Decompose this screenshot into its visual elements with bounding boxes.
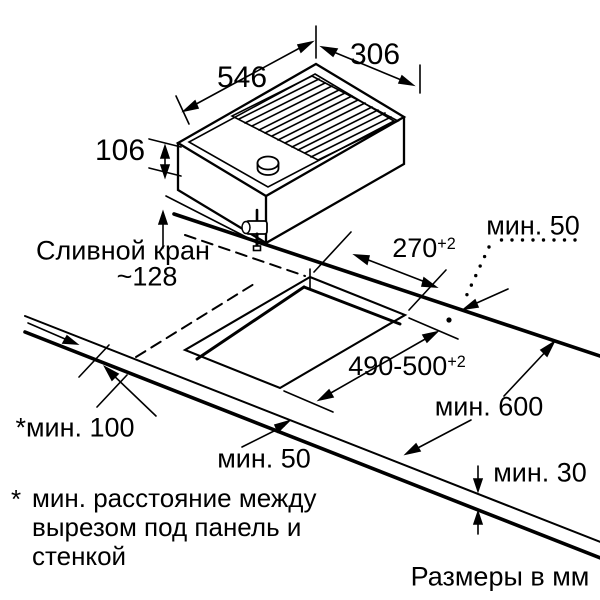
- min600-label: мин. 600: [435, 394, 544, 421]
- dim-490-value: 490-500: [348, 351, 447, 381]
- dim-270-tolerance: +2: [437, 235, 455, 253]
- min30-label: мин. 30: [493, 460, 587, 487]
- units-label: Размеры в мм: [411, 564, 590, 591]
- footnote-line-3: стенкой: [32, 542, 316, 571]
- min30-arrows: [474, 466, 482, 534]
- min100-dim: [28, 323, 156, 416]
- footnote-text: мин. расстояние между вырезом под панель…: [32, 484, 316, 571]
- installation-diagram-canvas: 546 306 106 Сливной кран ~128 мин. 50 27…: [0, 0, 600, 600]
- footnote-star: *: [11, 486, 21, 512]
- dim-306-label: 306: [350, 40, 400, 70]
- dim-128-label: ~128: [117, 264, 178, 291]
- drain-valve-label: Сливной кран: [36, 238, 210, 265]
- dim-106-line: [149, 139, 181, 177]
- dim-546-label: 546: [217, 63, 267, 93]
- appliance-drawing: [178, 64, 404, 251]
- footnote-line-2: вырезом под панель и: [32, 513, 316, 542]
- knob-glyph: [258, 157, 279, 176]
- min100-label: *мин. 100: [15, 415, 134, 442]
- dim-490-tolerance: +2: [447, 353, 465, 371]
- min50-bottom-label: мин. 50: [217, 446, 311, 473]
- dim-270-label: 270+2: [392, 234, 456, 262]
- dim-270-value: 270: [392, 233, 437, 263]
- dim-106-label: 106: [95, 136, 145, 166]
- footnote-line-1: мин. расстояние между: [32, 484, 316, 513]
- dim-490-label: 490-500+2: [348, 352, 466, 380]
- min50-top-label: мин. 50: [486, 213, 580, 240]
